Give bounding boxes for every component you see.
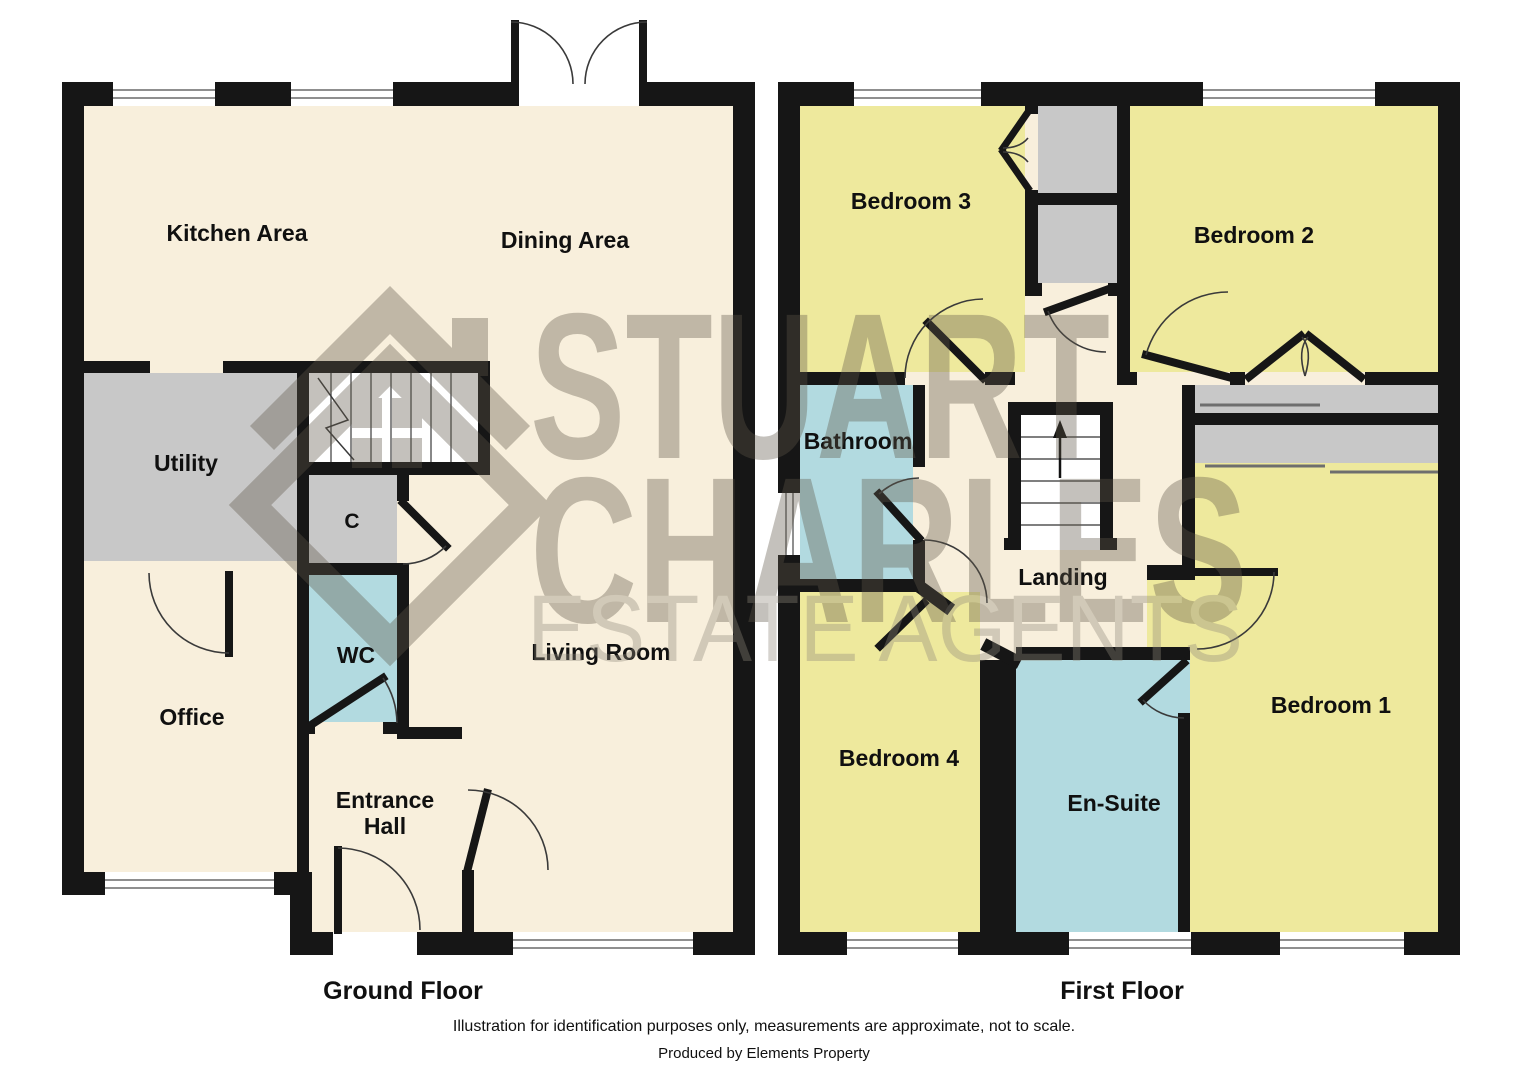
room-label-office: Office	[159, 704, 224, 730]
room-label-ensuite: En-Suite	[1067, 790, 1160, 816]
window	[1280, 932, 1404, 955]
room-label-wc: WC	[337, 642, 375, 668]
room-label-bedroom2: Bedroom 2	[1194, 222, 1314, 248]
window	[105, 872, 274, 895]
window	[113, 82, 215, 106]
producer-text: Produced by Elements Property	[658, 1045, 870, 1062]
floorplan-page: Kitchen Area Dining Area Utility C WC Of…	[0, 0, 1528, 1080]
room-label-bedroom1: Bedroom 1	[1271, 692, 1391, 718]
room-label-bedroom3: Bedroom 3	[851, 188, 971, 214]
window	[513, 932, 693, 955]
cupboard-upper	[1038, 106, 1117, 193]
watermark-line3: ESTATE AGENTS	[527, 576, 1243, 682]
room-label-entrance-line2: Hall	[364, 813, 406, 839]
french-doors	[511, 20, 647, 84]
room-label-kitchen: Kitchen Area	[166, 220, 307, 246]
window	[1069, 932, 1191, 955]
room-label-utility: Utility	[154, 450, 218, 476]
room-label-bedroom4: Bedroom 4	[839, 745, 959, 771]
room-label-entrance-line1: Entrance	[336, 787, 434, 813]
room-label-dining: Dining Area	[501, 227, 629, 253]
window	[291, 82, 393, 106]
wardrobe-strip-bedroom2	[1195, 385, 1438, 413]
ground-floor-caption: Ground Floor	[323, 977, 483, 1005]
window	[1203, 82, 1375, 106]
window	[847, 932, 958, 955]
window	[854, 82, 981, 106]
disclaimer-text: Illustration for identification purposes…	[453, 1018, 1075, 1035]
first-floor-caption: First Floor	[1060, 977, 1184, 1005]
floorplan-image: Kitchen Area Dining Area Utility C WC Of…	[0, 0, 1528, 1080]
room-label-cupboard: C	[344, 510, 359, 533]
